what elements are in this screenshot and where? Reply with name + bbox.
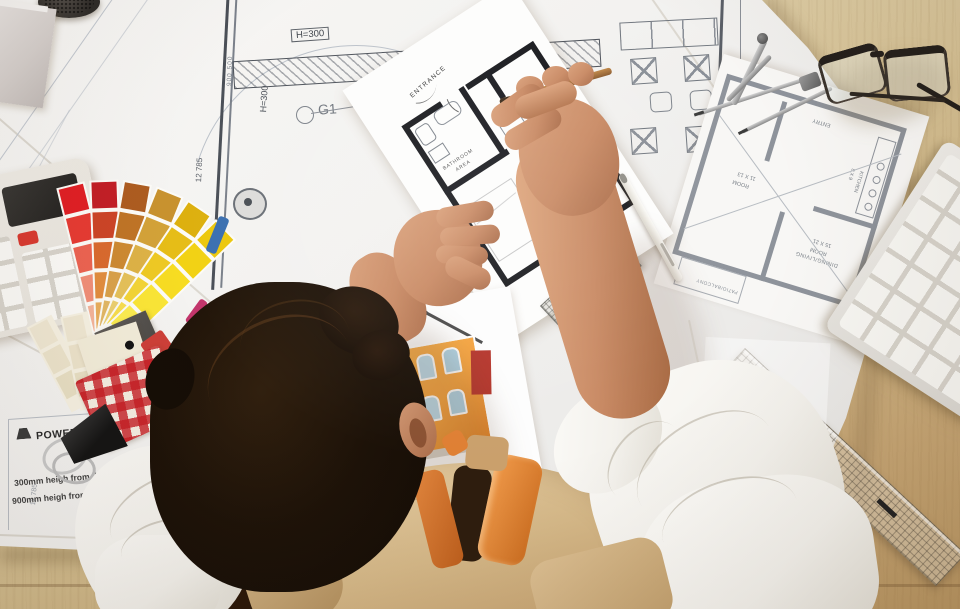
note-box-line	[8, 420, 9, 530]
furniture-x-square	[683, 54, 711, 82]
compass-wheel-center	[244, 198, 252, 206]
suspender-clip-top	[465, 434, 510, 472]
swatch-block	[59, 184, 90, 215]
swatch-block	[120, 182, 149, 212]
label-h300-top: H=300	[291, 27, 330, 43]
swatch-rivet	[124, 339, 135, 350]
photo-architect-desk: H=300 H=300 900 500 12 785 12 785 G1 208…	[0, 0, 960, 609]
glasses-bridge	[870, 51, 884, 58]
blueprint-counter	[619, 17, 718, 50]
swatch-block	[91, 182, 117, 209]
furniture-x-square	[630, 127, 658, 155]
compass-knob	[757, 33, 768, 44]
label-900-500: 900 500	[226, 56, 234, 87]
furniture-chair	[649, 91, 672, 112]
calculator-power-key	[17, 230, 39, 247]
ruler-mark	[876, 498, 897, 518]
blueprint-circle-marker	[296, 106, 314, 124]
label-h300-left: H=300	[258, 85, 270, 112]
furniture-x-square	[630, 57, 658, 85]
label-12785: 12 785	[194, 158, 204, 183]
